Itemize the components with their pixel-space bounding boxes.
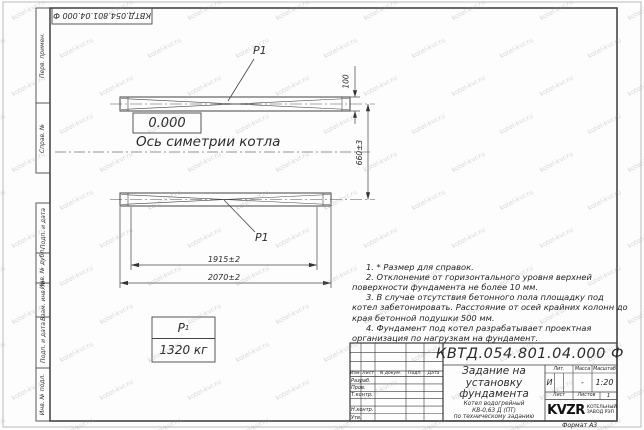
margin-label-perv-primen: Перв. примен.: [36, 8, 50, 103]
notes-block: 1. * Размер для справок. 2. Отклонение о…: [352, 262, 630, 343]
sheets-value: 1: [600, 393, 617, 399]
dim-660-text: 660±3: [351, 132, 369, 172]
col-list: Лист: [361, 371, 375, 377]
lit-value: И: [545, 375, 554, 389]
note-4: 4. Фундамент под котел разрабатывает про…: [352, 323, 630, 343]
p1-label-top: P1: [253, 44, 267, 57]
scale-label: Масштаб: [592, 366, 617, 372]
row-tkontr: Т.контр.: [351, 392, 373, 398]
kvzr-logo: KVZR КОТЕЛЬНЫЙ ЗАВОД РЭП: [546, 400, 616, 420]
title-line-1: Задание на: [443, 366, 545, 378]
subtitle-line-3: по техническому заданию: [443, 414, 545, 421]
kvzr-logo-text: KVZR: [547, 404, 585, 417]
lit-label: Лит.: [545, 366, 573, 372]
document-subtitle: Котел водогрейный КВ-0,63 Д (ПТ) по техн…: [443, 401, 545, 421]
load-value: 1320 кг: [152, 340, 215, 360]
scale-value: 1:20: [592, 375, 617, 389]
row-razrab: Разраб.: [351, 378, 371, 384]
titleblock-designation: КВТД.054.801.04.000 Ф: [443, 343, 617, 365]
col-izm: Изм.: [350, 371, 361, 377]
boiler-axis-label: Ось симетрии котла: [136, 134, 280, 150]
margin-label-inv-dubl: Инв. № дубл.: [36, 253, 50, 283]
note-2: 2. Отклонение от горизонтального уровня …: [352, 272, 630, 292]
lower-pad: [110, 193, 375, 206]
row-nkontr: Н.контр.: [351, 407, 373, 413]
top-stamp-designation: КВТД.054.801.04.000 Ф: [52, 8, 152, 24]
margin-label-podp-data-1: Подп. и дата: [36, 203, 50, 253]
dim-1915-text: 1915±2: [194, 255, 254, 264]
dim-100-text: 100: [337, 68, 355, 94]
note-3: 3. В случае отсутствия бетонного пола пл…: [352, 292, 630, 322]
subtitle-line-1: Котел водогрейный: [443, 401, 545, 408]
p1-label-bottom: P1: [255, 231, 269, 244]
upper-pad: [110, 97, 375, 111]
load-symbol-sub: 1: [185, 324, 189, 332]
row-utv: Утв.: [351, 415, 362, 421]
col-data: Дата: [424, 371, 443, 377]
org-line-2: ЗАВОД РЭП: [587, 410, 617, 415]
subtitle-line-2: КВ-0,63 Д (ПТ): [443, 408, 545, 415]
load-symbol: Р1: [152, 318, 215, 338]
margin-label-sprav-n: Справ. №: [36, 103, 50, 173]
sheets-label: Листов: [573, 393, 600, 399]
load-symbol-main: Р: [178, 321, 185, 335]
title-line-3: фундамента: [443, 389, 545, 401]
drawing-sheet: КВТД.054.801.04.000 Ф Перв. примен. Спра…: [0, 0, 644, 430]
format-label: Формат А3: [562, 422, 597, 429]
margin-label-podp-data-2: Подп. и дата: [36, 317, 50, 368]
mass-value: -: [573, 375, 592, 389]
sheet-label: Лист: [545, 393, 573, 399]
note-1: 1. * Размер для справок.: [352, 262, 630, 272]
mass-label: Масса: [573, 366, 592, 372]
col-podp: Подп.: [406, 371, 424, 377]
row-prov: Пров.: [351, 385, 366, 391]
col-ndokum: N докум.: [375, 371, 406, 377]
elevation-label: 0.000: [133, 113, 201, 133]
org-name: КОТЕЛЬНЫЙ ЗАВОД РЭП: [587, 405, 617, 416]
document-title: Задание на установку фундамента: [443, 366, 545, 401]
margin-label-vzam-inv: Взам. инв. №: [36, 283, 50, 317]
margin-label-inv-podl: Инв. № подл.: [36, 368, 50, 421]
dim-2070-text: 2070±2: [194, 273, 254, 282]
